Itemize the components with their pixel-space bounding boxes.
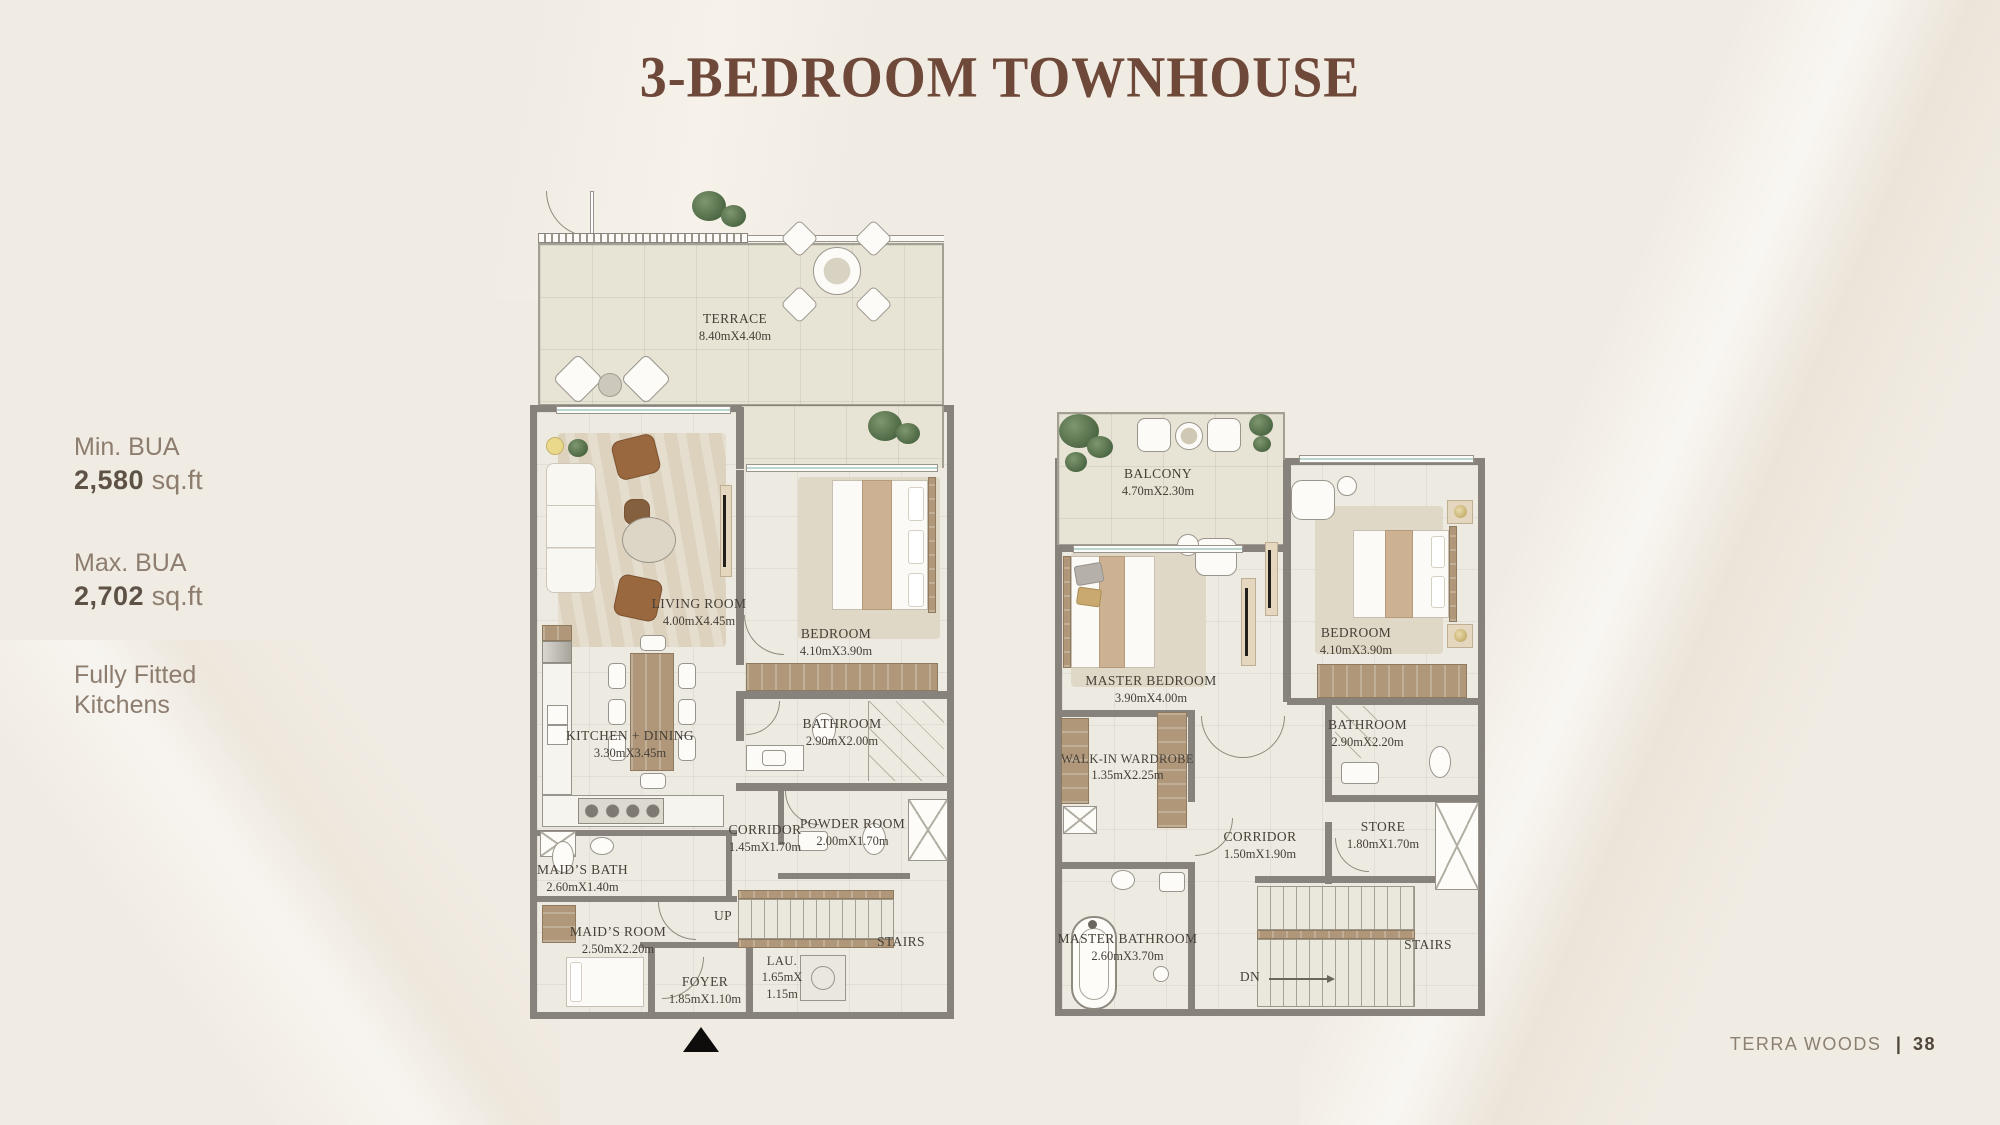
side-table bbox=[1337, 476, 1357, 496]
wall bbox=[648, 947, 655, 1013]
plant bbox=[568, 439, 588, 457]
side-table bbox=[598, 373, 622, 397]
room-label-powder: POWDER ROOM 2.00mX1.70m bbox=[785, 815, 920, 849]
headboard bbox=[1449, 526, 1457, 622]
plant bbox=[1065, 452, 1087, 472]
tv-console bbox=[1265, 542, 1278, 616]
tv-screen bbox=[1245, 588, 1248, 656]
wall bbox=[1287, 698, 1485, 705]
lamp bbox=[1454, 505, 1467, 518]
footer: TERRA WOODS | 38 bbox=[1730, 1034, 1936, 1055]
room-label-bedroom: BEDROOM 4.10mX3.90m bbox=[776, 625, 896, 659]
stair-rail bbox=[1257, 930, 1415, 939]
pillow bbox=[908, 487, 924, 521]
bed-runner bbox=[862, 480, 892, 610]
feature-text: Fully Fitted Kitchens bbox=[74, 660, 203, 720]
fridge bbox=[542, 641, 572, 663]
entrance-marker bbox=[683, 1027, 719, 1052]
room-label-maids-room: MAID’S ROOM 2.50mX2.20m bbox=[558, 923, 678, 957]
dining-chair bbox=[608, 699, 626, 725]
balcony-table bbox=[1175, 422, 1203, 450]
min-bua-value: 2,580 sq.ft bbox=[74, 465, 203, 496]
living-room-window bbox=[556, 406, 731, 414]
room-label-living: LIVING ROOM 4.00mX4.45m bbox=[634, 595, 764, 629]
footer-brand: TERRA WOODS bbox=[1730, 1034, 1882, 1054]
room-label-maids-bath: MAID’S BATH 2.60mX1.40m bbox=[530, 861, 635, 895]
terrace-railing bbox=[748, 235, 944, 242]
room-label-terrace: TERRACE 8.40mX4.40m bbox=[670, 310, 800, 344]
room-label-wardrobe: WALK-IN WARDROBE 1.35mX2.25m bbox=[1055, 751, 1200, 784]
footer-page-number: 38 bbox=[1913, 1034, 1936, 1054]
room-label-bathroom: BATHROOM 2.90mX2.00m bbox=[782, 715, 902, 749]
coffee-table bbox=[622, 517, 676, 563]
spacer bbox=[74, 496, 203, 548]
room-label-balcony: BALCONY 4.70mX2.30m bbox=[1098, 465, 1218, 499]
wall bbox=[778, 873, 910, 879]
min-bua-label: Min. BUA bbox=[74, 432, 203, 462]
dining-chair bbox=[678, 663, 696, 689]
kitchen-cabinet bbox=[542, 625, 572, 641]
stair-rail bbox=[738, 890, 894, 899]
spacer bbox=[74, 612, 203, 660]
ground-floor-plan: TERRACE 8.40mX4.40m LIVING ROOM 4.00mX4.… bbox=[530, 185, 954, 1075]
bed-runner bbox=[1385, 530, 1413, 618]
plant bbox=[721, 205, 746, 227]
pillow bbox=[1431, 536, 1445, 568]
plant bbox=[896, 423, 920, 444]
page-title: 3-BEDROOM TOWNHOUSE bbox=[0, 44, 2000, 111]
room-label-laundry: LAU. 1.65mX 1.15m bbox=[752, 953, 812, 1002]
label-stairs2: STAIRS bbox=[1397, 936, 1459, 954]
down-arrow-line bbox=[1269, 978, 1327, 980]
bedroom-window bbox=[1299, 455, 1474, 463]
tv-screen bbox=[723, 495, 726, 567]
faucet bbox=[1088, 920, 1097, 929]
wall bbox=[1283, 460, 1291, 702]
label-stairs: STAIRS bbox=[870, 933, 932, 951]
dining-chair bbox=[640, 635, 666, 651]
plant bbox=[1253, 436, 1271, 452]
toilet bbox=[1111, 870, 1135, 890]
pillow bbox=[908, 530, 924, 564]
lamp bbox=[1454, 629, 1467, 642]
sink bbox=[1341, 762, 1379, 784]
wall bbox=[1325, 795, 1485, 802]
master-bedroom-window bbox=[1073, 545, 1243, 553]
wall bbox=[537, 896, 737, 902]
pillow bbox=[908, 573, 924, 607]
room-label-master-bedroom: MASTER BEDROOM 3.90mX4.00m bbox=[1071, 672, 1231, 706]
wall bbox=[736, 691, 954, 699]
wall bbox=[736, 470, 744, 665]
balcony-chair bbox=[1207, 418, 1241, 452]
balcony-chair bbox=[1137, 418, 1171, 452]
tv-screen bbox=[1268, 550, 1271, 608]
room-label-corridor2: CORRIDOR 1.50mX1.90m bbox=[1200, 828, 1320, 862]
toilet bbox=[1429, 746, 1451, 778]
room-label-bedroom2: BEDROOM 4.10mX3.90m bbox=[1296, 624, 1416, 658]
wall bbox=[736, 783, 954, 791]
max-bua-value: 2,702 sq.ft bbox=[74, 581, 203, 612]
armchair bbox=[1195, 538, 1237, 576]
floor-lamp bbox=[546, 437, 564, 455]
stool bbox=[1153, 966, 1169, 982]
bedroom-wardrobe bbox=[1317, 664, 1467, 698]
first-floor-plan: BALCONY 4.70mX2.30m MASTER BEDROOM 3.90m… bbox=[1055, 410, 1491, 1022]
info-panel: Min. BUA 2,580 sq.ft Max. BUA 2,702 sq.f… bbox=[74, 432, 203, 720]
room-label-store: STORE 1.80mX1.70m bbox=[1323, 818, 1443, 852]
label-dn: DN bbox=[1233, 968, 1267, 986]
plant bbox=[1087, 436, 1113, 458]
wall bbox=[1055, 862, 1195, 869]
tv-console bbox=[1241, 578, 1256, 666]
room-label-master-bathroom: MASTER BATHROOM 2.60mX3.70m bbox=[1055, 930, 1200, 964]
tv-console bbox=[720, 485, 732, 577]
stairs-lower-run bbox=[1257, 939, 1415, 1007]
shaft bbox=[1063, 806, 1097, 834]
max-bua-label: Max. BUA bbox=[74, 548, 203, 578]
stairs-upper-run bbox=[1257, 886, 1415, 930]
sink bbox=[1159, 872, 1185, 892]
washing-machine-door bbox=[811, 966, 835, 990]
wall bbox=[736, 407, 744, 469]
down-arrow-head bbox=[1327, 975, 1335, 983]
room-label-kitchen: KITCHEN + DINING 3.30mX3.45m bbox=[560, 727, 700, 761]
room-label-bathroom2: BATHROOM 2.90mX2.20m bbox=[1305, 716, 1430, 750]
bedroom-wardrobe bbox=[746, 663, 938, 691]
sink bbox=[590, 837, 614, 855]
dining-chair bbox=[678, 699, 696, 725]
footer-divider: | bbox=[1896, 1034, 1903, 1054]
pillow bbox=[1431, 576, 1445, 608]
pillow bbox=[1076, 586, 1102, 607]
sofa bbox=[546, 463, 596, 593]
bedroom-window bbox=[746, 464, 938, 472]
dining-chair bbox=[608, 663, 626, 689]
stove bbox=[578, 798, 664, 824]
door-arc bbox=[546, 191, 591, 237]
headboard bbox=[1063, 556, 1071, 668]
pillow bbox=[570, 962, 582, 1002]
sink bbox=[762, 750, 786, 766]
wall bbox=[736, 699, 744, 741]
headboard bbox=[928, 477, 936, 613]
dining-chair bbox=[640, 773, 666, 789]
door-leaf bbox=[590, 191, 594, 237]
terrace-top-wall bbox=[538, 233, 748, 243]
room-label-foyer: FOYER 1.85mX1.10m bbox=[655, 973, 755, 1007]
terrace-dining-table bbox=[813, 247, 861, 295]
label-up: UP bbox=[706, 907, 740, 925]
plant bbox=[1249, 414, 1273, 436]
armchair bbox=[1291, 480, 1335, 520]
